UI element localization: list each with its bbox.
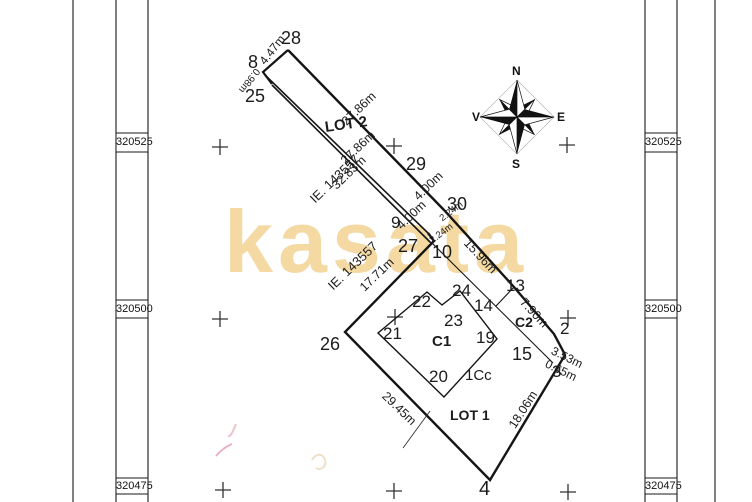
point-label-23: 23: [444, 312, 463, 329]
grid-label-left-320500: 320500: [116, 304, 148, 315]
point-label-4: 4: [479, 479, 490, 499]
building-c1-label: C1: [432, 334, 451, 349]
point-label-22: 22: [412, 293, 431, 310]
lot1-label: LOT 1: [450, 408, 490, 422]
point-label-2: 2: [560, 320, 569, 337]
grid-label-right-320500: 320500: [645, 304, 677, 315]
courtyard-1cc-label: 1Cc: [465, 368, 492, 383]
compass-rose: [480, 80, 554, 154]
scan-artifacts: [216, 424, 325, 469]
point-label-10: 10: [432, 243, 452, 261]
point-label-21: 21: [383, 325, 402, 342]
point-label-24: 24: [452, 282, 471, 299]
point-label-15: 15: [512, 345, 532, 363]
compass-east-label: E: [557, 110, 565, 124]
point-label-26: 26: [320, 335, 340, 353]
grid-label-left-320525: 320525: [116, 137, 148, 148]
point-label-27: 27: [398, 237, 418, 255]
grid-label-right-320475: 320475: [645, 481, 677, 492]
compass-north-label: N: [512, 64, 521, 78]
point-label-14: 14: [474, 297, 493, 314]
compass-south-label: S: [512, 157, 520, 171]
compass-west-label: V: [472, 110, 480, 124]
grid-label-boxes: [116, 133, 677, 494]
grid-label-right-320525: 320525: [645, 137, 677, 148]
frame-lines: [73, 0, 715, 502]
grid-label-left-320475: 320475: [116, 481, 148, 492]
point-label-19: 19: [476, 329, 495, 346]
point-label-20: 20: [429, 368, 448, 385]
point-label-13: 13: [506, 277, 525, 294]
cadastral-plan: kasata: [0, 0, 752, 502]
point-label-29: 29: [406, 155, 426, 173]
